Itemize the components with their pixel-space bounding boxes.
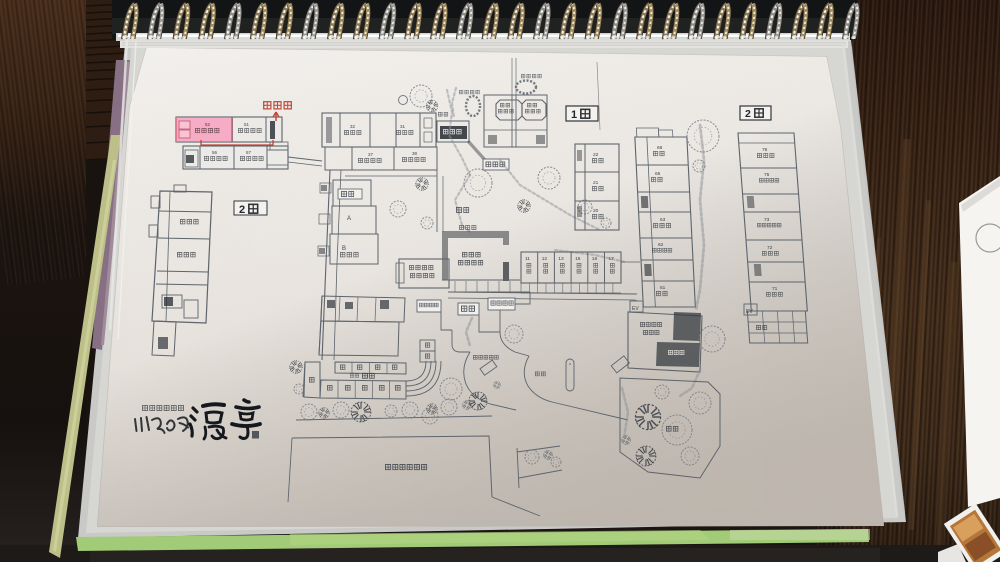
svg-text:73: 73 — [764, 217, 770, 223]
svg-text:72: 72 — [767, 245, 773, 251]
svg-text:63: 63 — [660, 217, 666, 223]
svg-text:20: 20 — [593, 208, 599, 214]
svg-text:65: 65 — [655, 171, 661, 177]
svg-text:13: 13 — [558, 256, 564, 262]
svg-text:21: 21 — [593, 180, 599, 186]
svg-text:22: 22 — [593, 152, 599, 158]
svg-text:61: 61 — [660, 285, 666, 291]
svg-text:51: 51 — [244, 122, 250, 127]
svg-text:57: 57 — [246, 150, 252, 155]
svg-text:2: 2 — [745, 108, 751, 120]
svg-text:66: 66 — [657, 145, 663, 151]
svg-text:1: 1 — [571, 109, 577, 121]
svg-text:56: 56 — [212, 150, 218, 155]
svg-text:B: B — [342, 246, 346, 252]
svg-text:17: 17 — [609, 256, 615, 262]
svg-text:71: 71 — [772, 286, 778, 292]
svg-text:31: 31 — [400, 124, 406, 129]
svg-text:11: 11 — [525, 256, 530, 262]
svg-text:76: 76 — [762, 147, 768, 153]
svg-text:52: 52 — [205, 122, 211, 127]
svg-text:38: 38 — [412, 151, 418, 156]
svg-text:A: A — [347, 216, 351, 222]
svg-text:EV: EV — [632, 306, 639, 312]
svg-text:15: 15 — [575, 256, 581, 262]
svg-text:62: 62 — [658, 242, 664, 248]
svg-text:37: 37 — [368, 152, 374, 157]
svg-text:16: 16 — [592, 256, 598, 262]
svg-text:75: 75 — [764, 172, 770, 178]
svg-text:12: 12 — [542, 256, 548, 262]
svg-text:EV: EV — [746, 309, 753, 315]
svg-text:32: 32 — [350, 124, 356, 129]
svg-text:2: 2 — [239, 204, 245, 216]
